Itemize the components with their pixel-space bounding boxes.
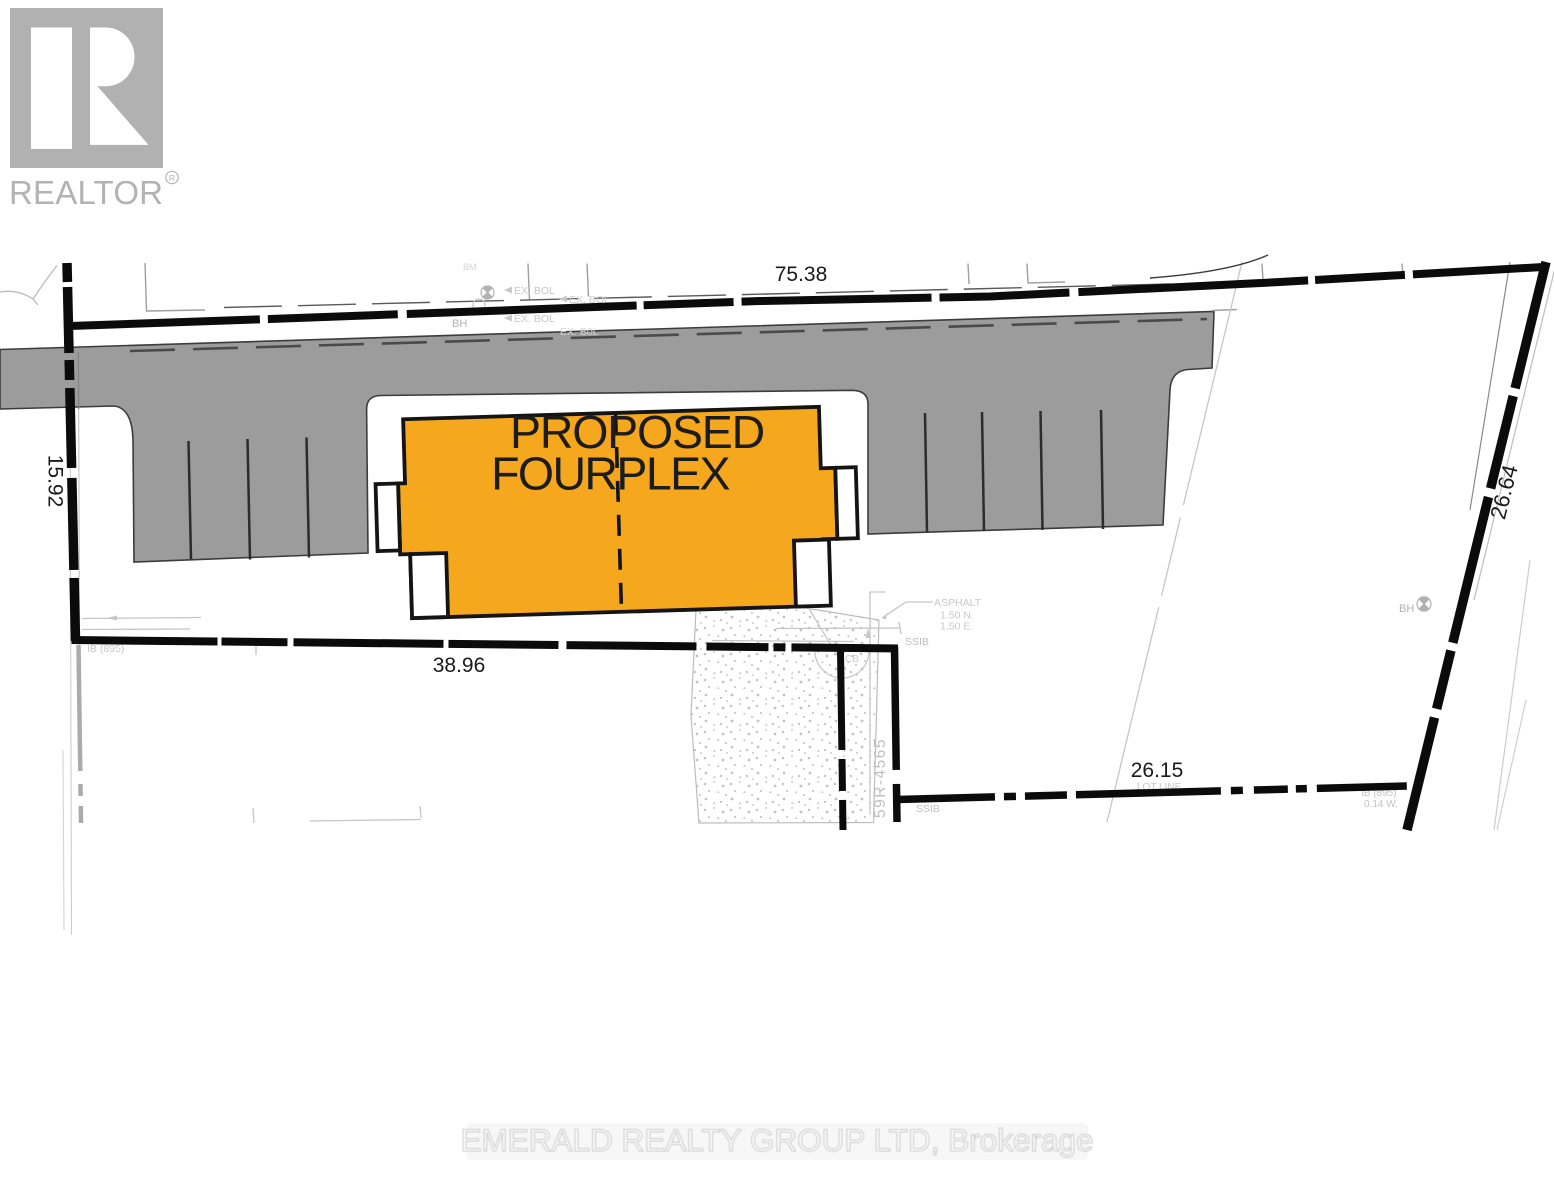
svg-text:0.14 W.: 0.14 W. [1364, 799, 1398, 810]
svg-text:15.92: 15.92 [44, 455, 67, 508]
svg-text:EX. B0L: EX. B0L [560, 326, 599, 338]
svg-text:BH: BH [452, 318, 467, 330]
svg-text:59R-4565: 59R-4565 [872, 738, 889, 818]
svg-text:IB (895): IB (895) [87, 643, 124, 655]
svg-text:SSIB: SSIB [916, 803, 940, 815]
svg-text:CB: CB [845, 654, 859, 665]
svg-text:SSIB: SSIB [905, 636, 929, 648]
svg-text:38.96: 38.96 [433, 654, 486, 677]
svg-text:BH: BH [1399, 603, 1414, 615]
svg-text:EX. BOL: EX. BOL [514, 313, 555, 325]
svg-text:BM: BM [463, 262, 477, 272]
svg-text:FOURPLEX: FOURPLEX [491, 448, 730, 500]
svg-text:1.50 E.: 1.50 E. [940, 621, 973, 633]
svg-text:R: R [169, 173, 175, 183]
svg-text:EMERALD REALTY GROUP LTD, Brok: EMERALD REALTY GROUP LTD, Brokerage [460, 1122, 1093, 1158]
svg-text:REALTOR: REALTOR [9, 174, 163, 211]
svg-text:EX. BOL: EX. BOL [514, 285, 555, 297]
svg-text:ASPHALT: ASPHALT [934, 597, 982, 609]
svg-text:26.15: 26.15 [1131, 759, 1184, 782]
svg-text:75.38: 75.38 [775, 263, 828, 286]
